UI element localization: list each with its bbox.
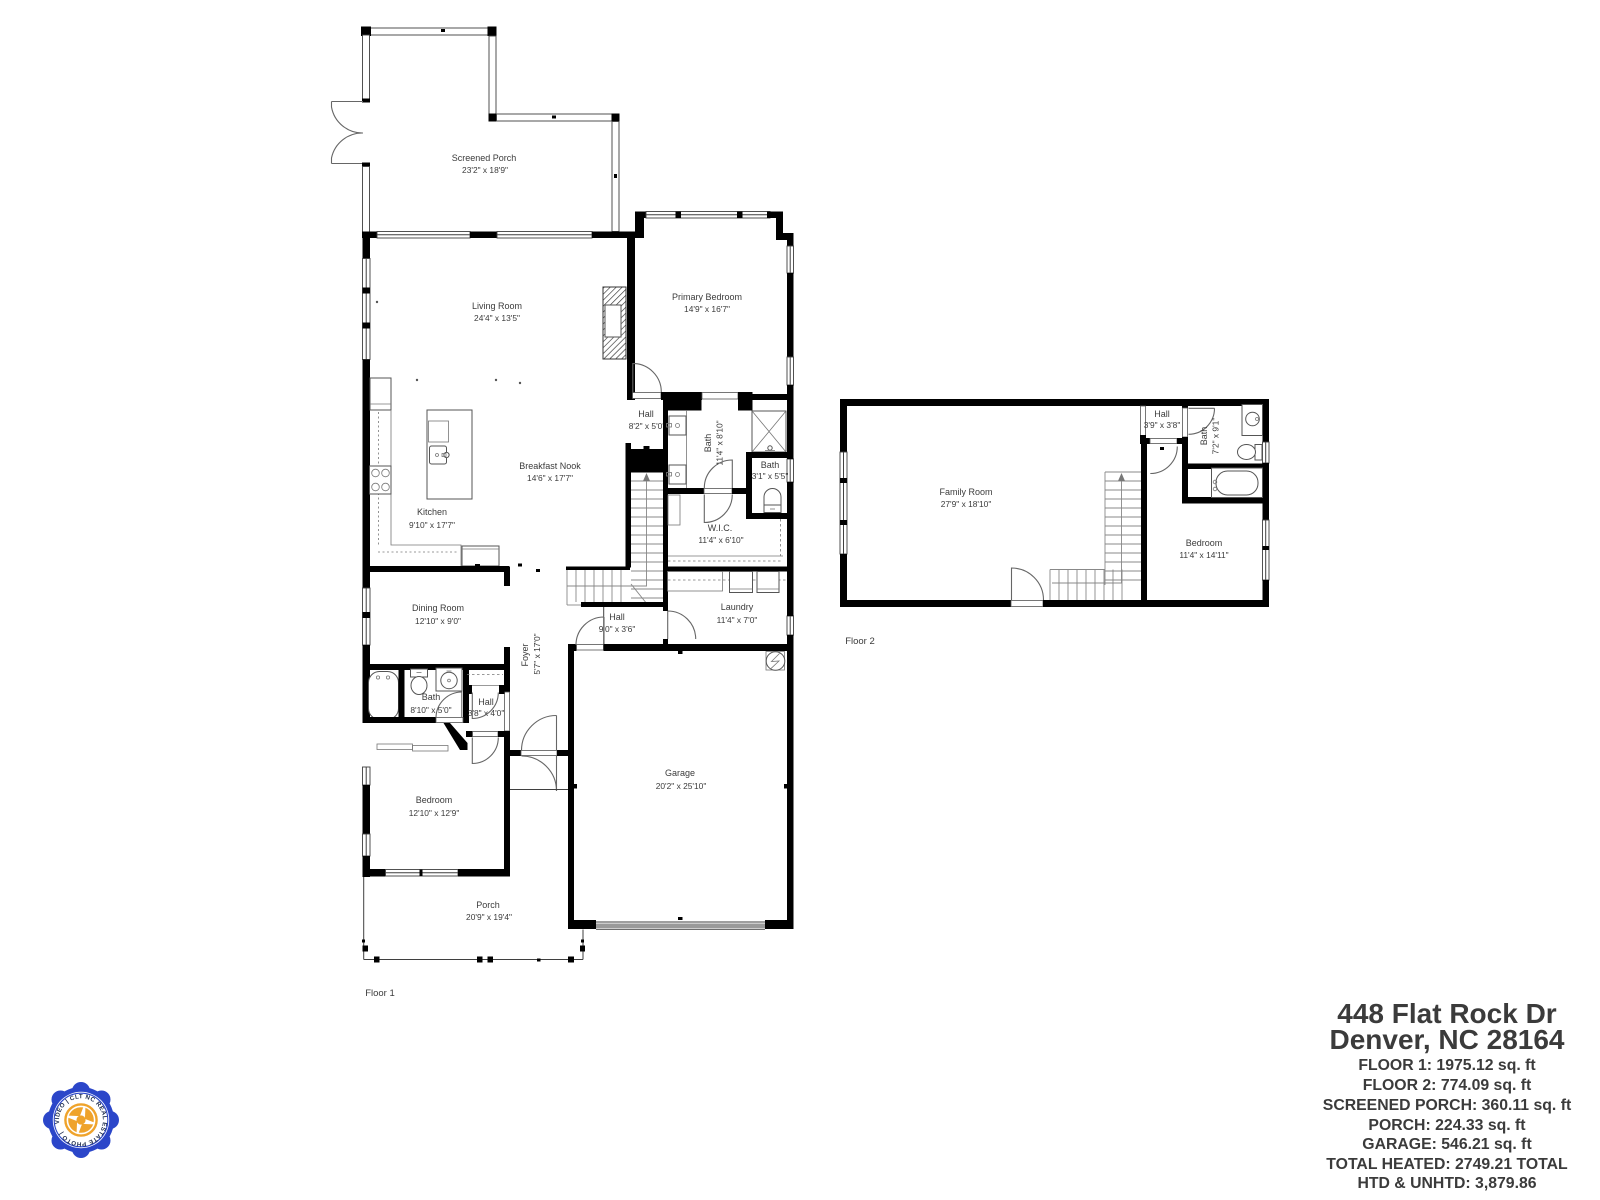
svg-text:FLOOR 1: 1975.12 sq. ft: FLOOR 1: 1975.12 sq. ft: [1358, 1057, 1536, 1074]
svg-text:Bedroom: Bedroom: [416, 795, 453, 805]
svg-text:Hall: Hall: [1154, 409, 1170, 419]
svg-text:8'2" x 5'0": 8'2" x 5'0": [629, 421, 666, 431]
svg-text:Living Room: Living Room: [472, 301, 522, 311]
svg-text:Laundry: Laundry: [721, 602, 754, 612]
svg-text:7'2" x 9'1": 7'2" x 9'1": [1211, 418, 1221, 455]
svg-text:3'1" x 5'5": 3'1" x 5'5": [752, 471, 789, 481]
svg-text:Screened Porch: Screened Porch: [452, 153, 517, 163]
svg-text:Floor 1: Floor 1: [365, 988, 395, 999]
svg-text:Garage: Garage: [665, 768, 695, 778]
svg-text:Family Room: Family Room: [939, 487, 992, 497]
svg-text:HTD & UNHTD: 3,879.86: HTD & UNHTD: 3,879.86: [1357, 1175, 1536, 1192]
svg-text:11'4" x 14'11": 11'4" x 14'11": [1179, 550, 1228, 560]
svg-text:5'7" x 17'0": 5'7" x 17'0": [532, 633, 542, 674]
svg-text:12'10" x 12'9": 12'10" x 12'9": [409, 808, 460, 818]
svg-text:Primary Bedroom: Primary Bedroom: [672, 292, 742, 302]
svg-text:24'4" x 13'5": 24'4" x 13'5": [474, 313, 520, 323]
svg-text:20'2" x 25'10": 20'2" x 25'10": [656, 781, 707, 791]
svg-text:8'10" x 5'0": 8'10" x 5'0": [410, 705, 451, 715]
svg-text:23'2" x 18'9": 23'2" x 18'9": [462, 165, 508, 175]
svg-text:GARAGE: 546.21 sq. ft: GARAGE: 546.21 sq. ft: [1362, 1136, 1532, 1153]
svg-text:Bedroom: Bedroom: [1186, 538, 1223, 548]
svg-text:Floor 2: Floor 2: [845, 636, 875, 647]
svg-text:PORCH: 224.33 sq. ft: PORCH: 224.33 sq. ft: [1368, 1117, 1526, 1134]
svg-text:TOTAL HEATED: 2749.21 TOTAL: TOTAL HEATED: 2749.21 TOTAL: [1326, 1156, 1568, 1173]
svg-text:20'9" x 19'4": 20'9" x 19'4": [466, 912, 512, 922]
svg-text:Hall: Hall: [638, 409, 654, 419]
svg-text:Dining Room: Dining Room: [412, 603, 464, 613]
svg-text:11'4" x 7'0": 11'4" x 7'0": [717, 615, 758, 625]
svg-text:Bath: Bath: [761, 460, 780, 470]
svg-text:Denver, NC 28164: Denver, NC 28164: [1329, 1024, 1564, 1055]
svg-text:3'8" x 4'0": 3'8" x 4'0": [468, 708, 505, 718]
svg-text:14'9" x 16'7": 14'9" x 16'7": [684, 304, 730, 314]
svg-text:Bath: Bath: [703, 434, 713, 453]
svg-text:Bath: Bath: [1199, 427, 1209, 446]
svg-text:Foyer: Foyer: [520, 643, 530, 666]
svg-text:27'9" x 18'10": 27'9" x 18'10": [941, 499, 992, 509]
svg-text:3'9" x 3'8": 3'9" x 3'8": [1144, 420, 1181, 430]
svg-text:Bath: Bath: [422, 692, 441, 702]
svg-text:Kitchen: Kitchen: [417, 507, 447, 517]
svg-text:Breakfast Nook: Breakfast Nook: [519, 461, 581, 471]
svg-text:12'10" x 9'0": 12'10" x 9'0": [415, 616, 461, 626]
svg-text:14'6" x 17'7": 14'6" x 17'7": [527, 473, 573, 483]
svg-text:Hall: Hall: [478, 697, 494, 707]
svg-text:9'10" x 17'7": 9'10" x 17'7": [409, 520, 455, 530]
svg-text:SCREENED PORCH: 360.11 sq. ft: SCREENED PORCH: 360.11 sq. ft: [1323, 1097, 1572, 1114]
svg-text:11'4" x 6'10": 11'4" x 6'10": [698, 535, 743, 545]
svg-text:Hall: Hall: [609, 612, 625, 622]
svg-text:FLOOR 2: 774.09 sq. ft: FLOOR 2: 774.09 sq. ft: [1363, 1077, 1532, 1094]
svg-text:Porch: Porch: [476, 900, 500, 910]
svg-text:11'4" x 8'10": 11'4" x 8'10": [715, 420, 725, 465]
svg-text:W.I.C.: W.I.C.: [708, 523, 733, 533]
